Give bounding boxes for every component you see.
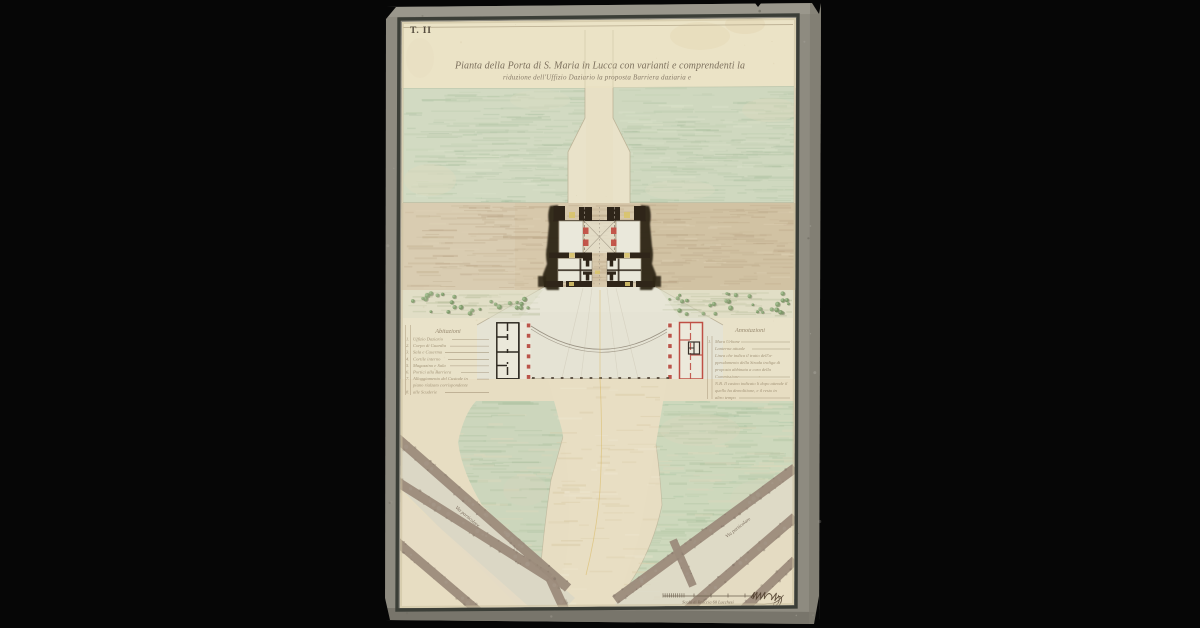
svg-text:2.: 2. (406, 343, 409, 348)
svg-text:4.: 4. (406, 356, 409, 361)
svg-text:altro tempo: altro tempo (715, 395, 736, 400)
svg-text:Lanterna attuale: Lanterna attuale (714, 346, 745, 351)
svg-text:proposta abbinata a cura d: proposta abbinata a cura della (714, 367, 772, 372)
svg-text:piano rialzato corrispondente: piano rialzato corrispondente (412, 383, 468, 388)
svg-text:Corpo di Guardia: Corpo di Guardia (413, 343, 447, 348)
svg-text:Cortile interno: Cortile interno (413, 356, 441, 361)
svg-text:Sala e Caserma: Sala e Caserma (413, 350, 443, 355)
svg-text:1.: 1. (406, 337, 409, 342)
svg-text:Uffizio Daziario: Uffizio Daziario (413, 337, 444, 342)
svg-text:Annotazioni: Annotazioni (734, 327, 765, 334)
svg-text:Portici alla Barriera: Portici alla Barriera (412, 370, 452, 375)
svg-text:pprodamento della Strada tr: pprodamento della Strada traliga di (714, 360, 781, 365)
svg-text:3.: 3. (406, 350, 409, 355)
svg-text:alle Scuderie: alle Scuderie (413, 389, 437, 394)
svg-text:N.B. Il casino indicato li dop: N.B. Il casino indicato li dopo attende … (714, 381, 788, 386)
svg-text:7.: 7. (406, 376, 409, 381)
svg-text:Magazzino e Sala: Magazzino e Sala (412, 363, 446, 368)
svg-text:1.: 1. (708, 339, 711, 344)
svg-text:5.: 5. (406, 363, 409, 368)
svg-text:riduzione dell'Uffizio Daziari: riduzione dell'Uffizio Daziario la propo… (503, 74, 691, 82)
svg-text:Alloggiamento del Custode in: Alloggiamento del Custode in (412, 376, 468, 381)
svg-text:Mura Urbane: Mura Urbane (714, 339, 740, 344)
svg-text:Pianta della Porta di S. Maria: Pianta della Porta di S. Maria in Lucca … (454, 61, 745, 72)
svg-text:T. II: T. II (410, 26, 432, 36)
svg-text:6.: 6. (406, 370, 409, 375)
svg-text:8.: 8. (406, 389, 409, 394)
svg-text:Commissione: Commissione (715, 374, 739, 379)
svg-text:Abitazioni: Abitazioni (434, 328, 461, 335)
svg-text:Linea che indica il tratto del: Linea che indica il tratto dell'a- (714, 353, 773, 358)
